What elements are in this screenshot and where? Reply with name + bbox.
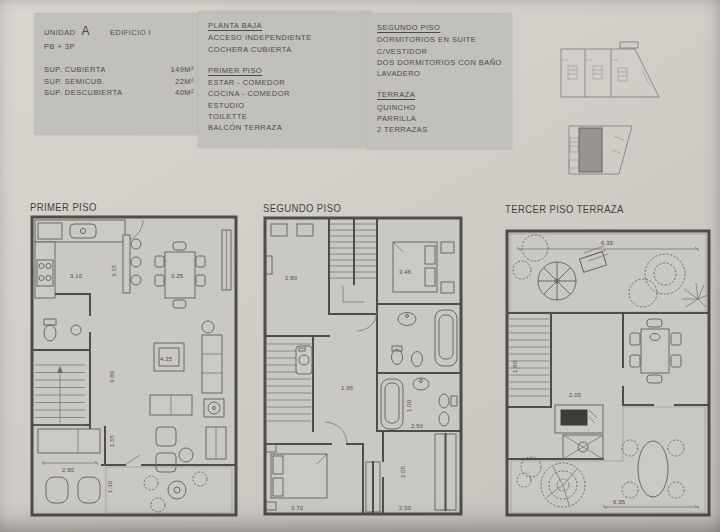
section-item: DOS DORMITORIOS CON BAÑO: [377, 57, 502, 68]
area-label: SUP. CUBIERTA: [44, 64, 106, 75]
section-item: ESTUDIO: [208, 100, 362, 111]
dim-label: 2.05: [569, 392, 581, 398]
dim-label: 2.80: [285, 275, 297, 281]
section-title: TERRAZA: [377, 89, 502, 100]
section-title: PLANTA BAJA: [208, 20, 362, 31]
dim-label: 1.80: [512, 361, 518, 373]
area-row: SUP. SEMICUB. 22M²: [44, 76, 194, 87]
dim-label: 3.15: [111, 265, 117, 277]
unit-title: UNIDAD A EDIFICIO I: [44, 22, 194, 40]
dim-label: 3.25: [171, 273, 183, 279]
plan-title: SEGUNDO PISO: [263, 201, 465, 214]
keyplan-lower: [566, 120, 652, 184]
area-value: 22M²: [175, 76, 194, 87]
section-item: COCHERA CUBIERTA: [208, 44, 362, 55]
plan-title: PRIMER PISO: [30, 200, 242, 213]
section-item: ACCESO INDEPENDIENTE: [208, 32, 362, 43]
section-item: LAVADERO: [377, 68, 502, 79]
area-row: SUP. DESCUBIERTA 40M²: [44, 87, 194, 98]
keyplan-upper: [558, 40, 666, 108]
area-label: SUP. DESCUBIERTA: [44, 87, 122, 98]
unit-label: UNIDAD: [44, 27, 75, 38]
info-panel-unit: UNIDAD A EDIFICIO I PB + 3P SUP. CUBIERT…: [34, 13, 204, 135]
section-item: COCINA - COMEDOR: [208, 88, 362, 99]
parrilla-grill: [561, 410, 587, 425]
section-item: PARRILLA: [377, 113, 502, 124]
building-label: EDIFICIO I: [110, 27, 151, 38]
dim-label: 2.50: [62, 467, 74, 473]
dim-label: 1.00: [406, 400, 412, 412]
bed: [393, 242, 437, 292]
washing-machine: [296, 346, 312, 374]
section-item: QUINCHO: [377, 102, 502, 113]
counter: [35, 242, 55, 298]
info-panel-levels-b: SEGUNDO PISO DORMITORIOS EN SUITE C/VEST…: [367, 13, 512, 150]
dim-label: 3.10: [70, 273, 82, 279]
floors-label: PB + 3P: [44, 41, 194, 52]
dim-label: 1.30: [107, 481, 113, 493]
dim-label: 2.05: [400, 466, 406, 478]
dim-label: 6.35: [601, 240, 613, 246]
area-value: 40M²: [175, 87, 194, 98]
section-item: ESTAR - COMEDOR: [208, 77, 362, 88]
dim-label: 2.50: [411, 423, 423, 429]
bed: [271, 454, 327, 498]
section-terraza: TERRAZA QUINCHO PARRILLA 2 TERRAZAS: [377, 89, 502, 135]
dim-label: 6.35: [613, 499, 625, 505]
scanned-plan-sheet: UNIDAD A EDIFICIO I PB + 3P SUP. CUBIERT…: [0, 0, 720, 532]
floorplan-tercer-piso: TERCER PISO TERRAZA 6.35: [505, 204, 713, 517]
unit-value: A: [81, 22, 89, 40]
section-item: 2 TERRAZAS: [377, 124, 502, 135]
section-segundo-piso: SEGUNDO PISO DORMITORIOS EN SUITE C/VEST…: [377, 22, 502, 79]
section-item: DORMITORIOS EN SUITE: [377, 34, 502, 45]
desk: [38, 429, 100, 453]
dim-label: 3.80: [109, 371, 115, 383]
section-item: BALCÓN TERRAZA: [208, 122, 362, 133]
section-item: TOILETTE: [208, 111, 362, 122]
section-title: PRIMER PISO: [208, 65, 362, 76]
dim-label: 1.95: [341, 385, 353, 391]
plan-title: TERCER PISO TERRAZA: [505, 202, 713, 215]
section-primer-piso: PRIMER PISO ESTAR - COMEDOR COCINA - COM…: [208, 65, 362, 134]
area-row: SUP. CUBIERTA 149M²: [44, 64, 194, 75]
floorplan-primer-piso: PRIMER PISO: [30, 202, 242, 517]
dim-label: 3.46: [399, 269, 411, 275]
oval-table: [638, 441, 668, 497]
dim-label: 3.70: [291, 505, 303, 511]
sofa: [202, 335, 222, 393]
dim-label: 1.55: [109, 435, 115, 447]
area-label: SUP. SEMICUB.: [44, 76, 105, 87]
umbrella: [538, 262, 576, 300]
area-value: 149M²: [170, 64, 194, 75]
section-title: SEGUNDO PISO: [377, 22, 502, 33]
section-planta-baja: PLANTA BAJA ACCESO INDEPENDIENTE COCHERA…: [208, 20, 362, 55]
floorplan-segundo-piso: SEGUNDO PISO 2.80: [263, 203, 465, 516]
info-panel-levels-a: PLANTA BAJA ACCESO INDEPENDIENTE COCHERA…: [198, 11, 372, 148]
dim-label: 4.35: [160, 356, 172, 362]
dim-label: 2.50: [399, 505, 411, 511]
section-item: C/VESTIDOR: [377, 46, 502, 57]
